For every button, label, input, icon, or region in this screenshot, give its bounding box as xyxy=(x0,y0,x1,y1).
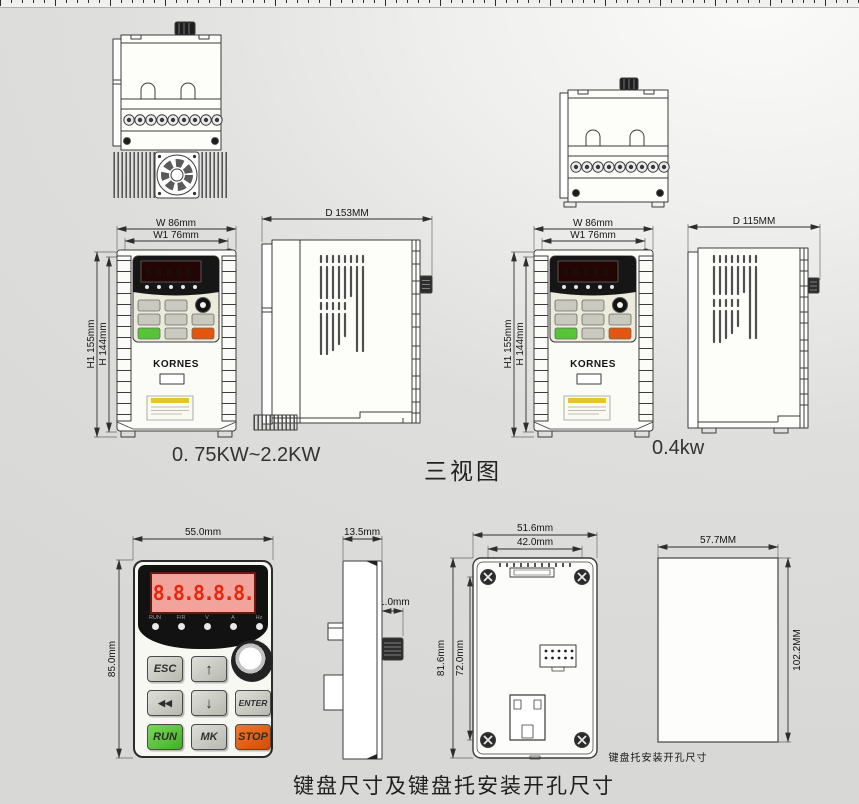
dim-label-back-height: 81.6mm xyxy=(436,640,447,676)
led-dot-icon xyxy=(230,623,237,630)
led-dot-icon xyxy=(204,623,211,630)
model-04kw-label: 0.4kw xyxy=(652,437,704,460)
top-ruler xyxy=(0,0,859,8)
keypad-side-view: 13.5mm 11.0mm xyxy=(316,524,416,768)
stop-button: STOP xyxy=(235,724,271,750)
cutout-caption: 键盘托安装开孔尺寸 xyxy=(609,751,708,764)
up-button: ↑ xyxy=(191,656,227,682)
frontview-075kw: W 86mm W1 76mm H1 155mm H 144mm xyxy=(88,216,248,444)
sideview-04kw: D 115MM xyxy=(682,216,827,434)
front-view-device xyxy=(117,249,236,437)
sideview-075kw: D 153MM xyxy=(253,206,438,440)
led-dot-icon xyxy=(178,623,185,630)
run-button: RUN xyxy=(147,724,183,750)
seven-segment-display: 8.8.8.8.8. xyxy=(150,572,256,614)
dim-label-h: H 144mm xyxy=(515,322,526,365)
front-view-device xyxy=(534,249,653,437)
cutout-rect xyxy=(658,558,778,742)
frontview-04kw: W 86mm W1 76mm H1 155mm H 144mm xyxy=(505,216,665,444)
esc-button: ESC xyxy=(147,656,183,682)
cutout-view: 57.7MM 102.2MM 键盘托安装开孔尺寸 xyxy=(645,528,835,772)
led-fr: F/R xyxy=(171,615,191,630)
led-dot-icon xyxy=(152,623,159,630)
shift-left-button: ◀◀ xyxy=(147,690,183,716)
enter-button: ENTER xyxy=(235,690,271,716)
dim-label-h1: H1 155mm xyxy=(86,320,97,369)
technical-drawing-page: 8.8.8.8.8. KORNES xyxy=(0,0,859,804)
keypad-front-view: 55.0mm 85.0mm 8.8.8.8.8. RUN F/R V A Hz … xyxy=(106,524,296,772)
pot-knob-icon xyxy=(808,278,819,293)
topview-04kw xyxy=(552,76,677,218)
dim-label-w: W 86mm xyxy=(156,218,196,229)
three-views-title: 三视图 xyxy=(424,452,502,486)
pot-knob-icon xyxy=(382,638,403,660)
led-a: A xyxy=(223,615,243,630)
keypad-knob xyxy=(231,640,273,682)
led-v: V xyxy=(197,615,217,630)
dim-label-w1: W1 76mm xyxy=(570,230,616,241)
topview-075kw xyxy=(105,20,245,214)
dim-label-kp-depth: 13.5mm xyxy=(344,527,380,538)
dim-label-hole-width: 42.0mm xyxy=(517,537,553,548)
dim-label-hole-height: 72.0mm xyxy=(455,640,466,676)
led-dot-icon xyxy=(256,623,263,630)
rj45-jack xyxy=(510,695,545,740)
dim-label-kp-width: 55.0mm xyxy=(185,527,221,538)
pot-knob-icon xyxy=(175,22,195,35)
model-range-label: 0. 75KW~2.2KW xyxy=(172,444,320,467)
keypad-back-view: 51.6mm 42.0mm 81.6mm 72.0mm xyxy=(436,518,616,770)
dim-label-w: W 86mm xyxy=(573,218,613,229)
dim-label-back-width: 51.6mm xyxy=(517,523,553,534)
dim-label-d: D 115MM xyxy=(733,216,776,227)
pin-connector xyxy=(540,645,576,667)
dim-label-h: H 144mm xyxy=(98,322,109,365)
keypad-panel: 8.8.8.8.8. RUN F/R V A Hz ESC ↑ ◀◀ ↓ ENT… xyxy=(133,560,273,758)
mk-button: MK xyxy=(191,724,227,750)
dim-label-cutout-width: 57.7MM xyxy=(700,535,736,546)
bottom-section-caption: 键盘尺寸及键盘托安装开孔尺寸 xyxy=(293,770,615,800)
dim-label-d: D 153MM xyxy=(325,208,368,219)
heatsink-fins xyxy=(254,415,297,430)
down-button: ↓ xyxy=(191,690,227,716)
dim-label-h1: H1 155mm xyxy=(503,320,514,369)
heatsink-fins xyxy=(113,152,155,198)
led-hz: Hz xyxy=(249,615,269,630)
dim-label-cutout-height: 102.2MM xyxy=(792,629,803,671)
dim-label-w1: W1 76mm xyxy=(153,230,199,241)
led-run: RUN xyxy=(145,615,165,630)
dim-label-kp-height: 85.0mm xyxy=(107,641,118,677)
